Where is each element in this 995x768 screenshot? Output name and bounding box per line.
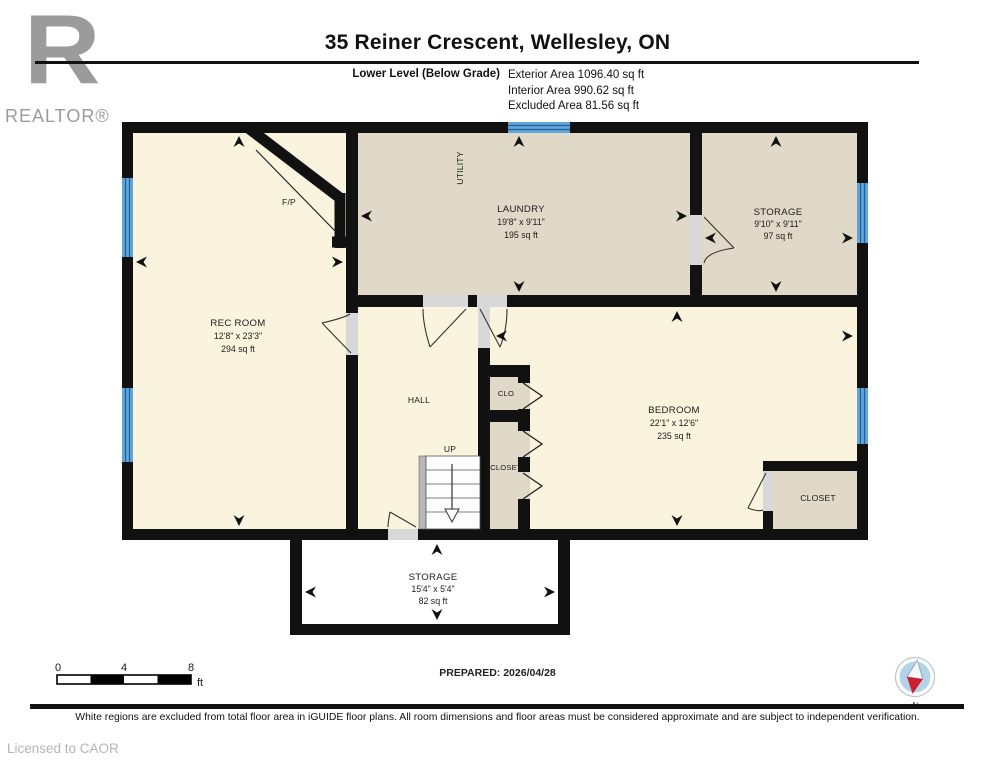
fireplace-label: F/P	[282, 197, 296, 207]
bedroom-dims: 22'1" x 12'6"	[650, 418, 698, 428]
storage-bottom-name: STORAGE	[409, 572, 458, 583]
laundry-dims: 19'8" x 9'11"	[497, 217, 545, 227]
prepared-date: PREPARED: 2026/04/28	[0, 667, 995, 679]
floorplan-canvas: REC ROOM 12'8" x 23'3" 294 sq ft LAUNDRY…	[0, 0, 995, 768]
window-right-storage	[857, 183, 868, 243]
license-text: Licensed to CAOR	[7, 741, 119, 756]
header-divider	[35, 61, 919, 64]
utility-label: UTILITY	[455, 151, 465, 184]
storage-top-dims: 9'10" x 9'11"	[754, 219, 802, 229]
footer-divider	[30, 704, 964, 709]
window-right-bedroom	[857, 388, 868, 444]
storage-top-area: 97 sq ft	[764, 231, 793, 241]
rec-room-name: REC ROOM	[210, 318, 265, 329]
bedroom-name: BEDROOM	[648, 405, 700, 416]
bedroom-area: 235 sq ft	[657, 431, 691, 441]
rec-room-area: 294 sq ft	[221, 344, 255, 354]
laundry-area: 195 sq ft	[504, 230, 538, 240]
clo-label: CLO	[498, 389, 514, 398]
storage-bottom-dims: 15'4" x 5'4"	[411, 584, 454, 594]
disclaimer-text: White regions are excluded from total fl…	[0, 712, 995, 723]
closet-br-label: CLOSET	[800, 493, 836, 503]
storage-top-name: STORAGE	[754, 207, 803, 218]
laundry-name: LAUNDRY	[497, 204, 545, 215]
stairs-up-label: UP	[444, 444, 456, 454]
staircase	[419, 456, 480, 529]
compass-icon: N	[893, 655, 937, 710]
closet-mid-label: CLOSET	[490, 463, 522, 472]
window-top	[508, 122, 570, 133]
window-left-2	[122, 388, 133, 462]
rec-room-dims: 12'8" x 23'3"	[214, 331, 262, 341]
window-left-1	[122, 178, 133, 257]
hall-label: HALL	[408, 395, 430, 405]
storage-bottom-area: 82 sq ft	[419, 596, 448, 606]
